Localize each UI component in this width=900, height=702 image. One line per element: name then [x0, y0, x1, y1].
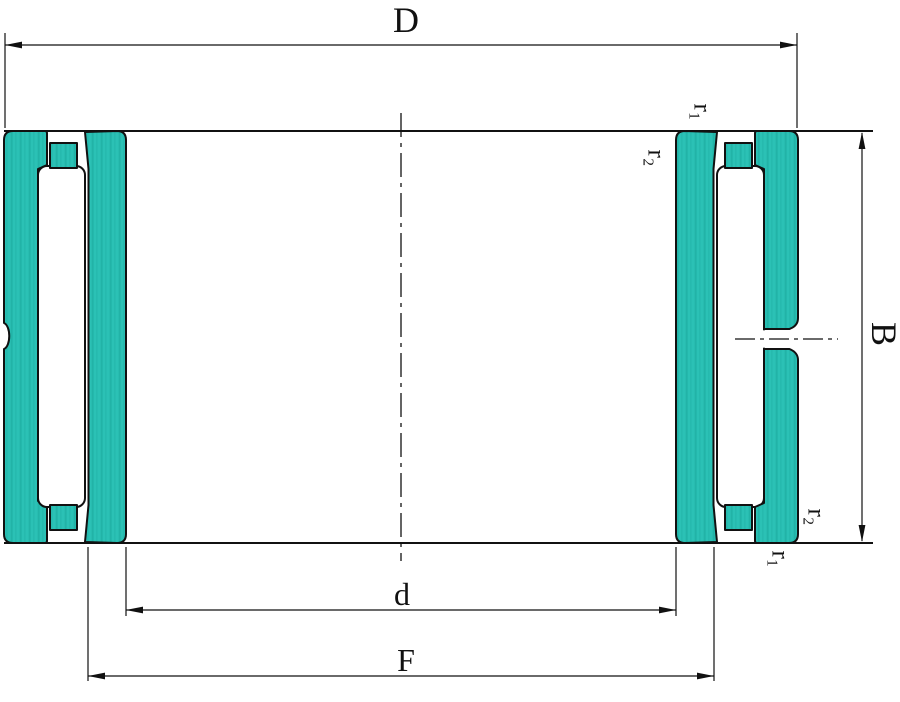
label-chamfer-r2-top: r₂: [643, 149, 670, 166]
right-needle-roller: [717, 166, 764, 507]
bearing-drawing: D B d F r₁ r₂ r₂ r₁: [0, 0, 900, 702]
label-chamfer-r2-bottom: r₂: [803, 508, 830, 525]
left-inner-ring: [85, 131, 126, 543]
label-chamfer-r1-bottom: r₁: [767, 550, 794, 567]
label-outer-diameter: D: [393, 0, 419, 40]
left-cage-top: [50, 143, 77, 168]
right-inner-ring: [676, 131, 717, 543]
right-cage-bottom: [725, 505, 752, 530]
left-needle-roller: [38, 166, 85, 507]
label-raceway-diameter: F: [397, 642, 415, 678]
left-cage-bottom: [50, 505, 77, 530]
bearing-cross-section-svg: D B d F r₁ r₂ r₂ r₁: [0, 0, 900, 702]
label-bore: d: [394, 576, 410, 612]
label-chamfer-r1-top: r₁: [689, 103, 716, 120]
right-cage-top: [725, 143, 752, 168]
label-width: B: [864, 322, 900, 346]
